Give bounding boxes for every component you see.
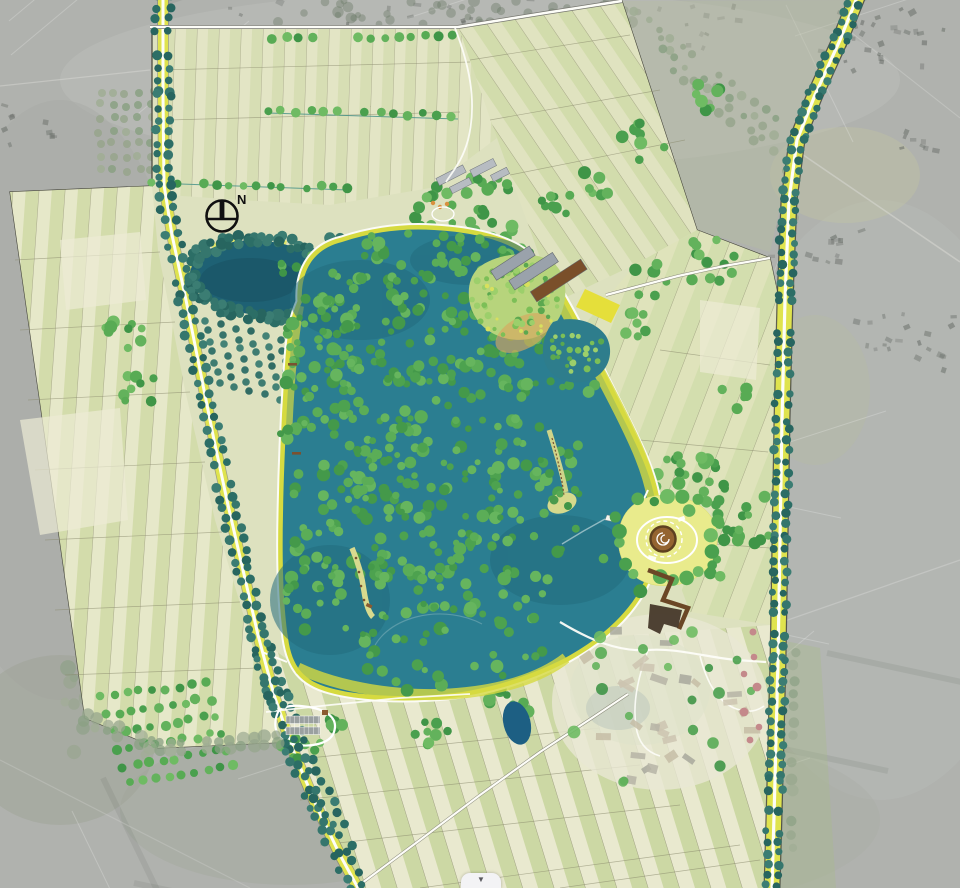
spiral-mound — [651, 527, 676, 552]
chevron-down-icon: ▼ — [477, 876, 485, 884]
master-plan-canvas: N — [0, 0, 960, 888]
parking-kiosk — [322, 710, 328, 715]
scroll-down-button[interactable]: ▼ — [461, 873, 501, 888]
north-label: N — [237, 192, 246, 207]
site-master-plan-map: N ▼ — [0, 0, 960, 888]
